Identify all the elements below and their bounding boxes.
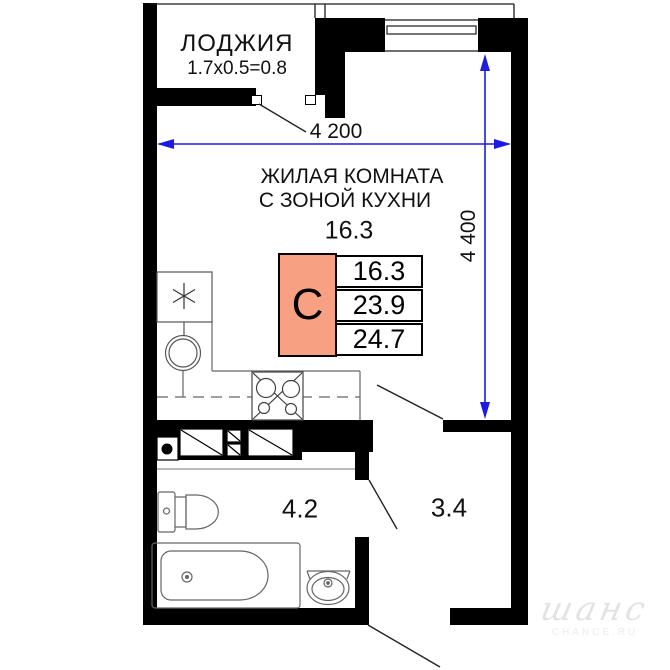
- dim-height-line: [480, 54, 490, 419]
- room-area-label: 16.3: [325, 217, 374, 246]
- dim-width-text: 4 200: [310, 120, 363, 144]
- loggia-dims: 1.7x0.5=0.8: [187, 58, 287, 80]
- floor-plan: ЛОДЖИЯ 1.7x0.5=0.8 4 200 4 400 ЖИЛАЯ КОМ…: [0, 0, 670, 670]
- spec-type-letter: С: [278, 253, 337, 357]
- toilet-icon: [158, 492, 218, 532]
- stove-icon: [252, 372, 303, 420]
- bathroom-area-label: 4.2: [282, 494, 318, 525]
- watermark-caption: CHANCE.RU: [540, 628, 650, 638]
- loggia-label: ЛОДЖИЯ: [181, 30, 294, 58]
- apartment-spec-box: С 16.3 23.9 24.7: [278, 253, 423, 357]
- bathroom-door-leaf: [369, 480, 397, 529]
- bathtub-icon: [152, 543, 300, 608]
- spec-area-main: 23.9: [335, 289, 423, 322]
- vent-shaft-icon: [180, 429, 293, 456]
- window-icon: [385, 20, 478, 51]
- loggia-door-leaf: [259, 104, 306, 132]
- entry-door-leaf: [368, 625, 440, 667]
- watermark-logo: шанс: [536, 592, 653, 625]
- kitchen-sink-icon: [166, 336, 201, 398]
- watermark: шанс CHANCE.RU: [540, 592, 650, 638]
- spec-area-living: 16.3: [335, 255, 423, 288]
- spec-area-total: 24.7: [335, 323, 423, 356]
- washbasin-icon: [307, 571, 350, 605]
- riser-box-icon: [157, 437, 178, 460]
- hall-area-label: 3.4: [431, 493, 467, 524]
- dim-height-text: 4 400: [457, 210, 481, 263]
- room-label-line2: С ЗОНОЙ КУХНИ: [259, 189, 431, 213]
- fridge-icon: [157, 272, 212, 338]
- loggia-outline: [150, 4, 514, 18]
- room-label-line1: ЖИЛАЯ КОМНАТА: [261, 165, 444, 189]
- room-hall-door-leaf: [377, 385, 443, 419]
